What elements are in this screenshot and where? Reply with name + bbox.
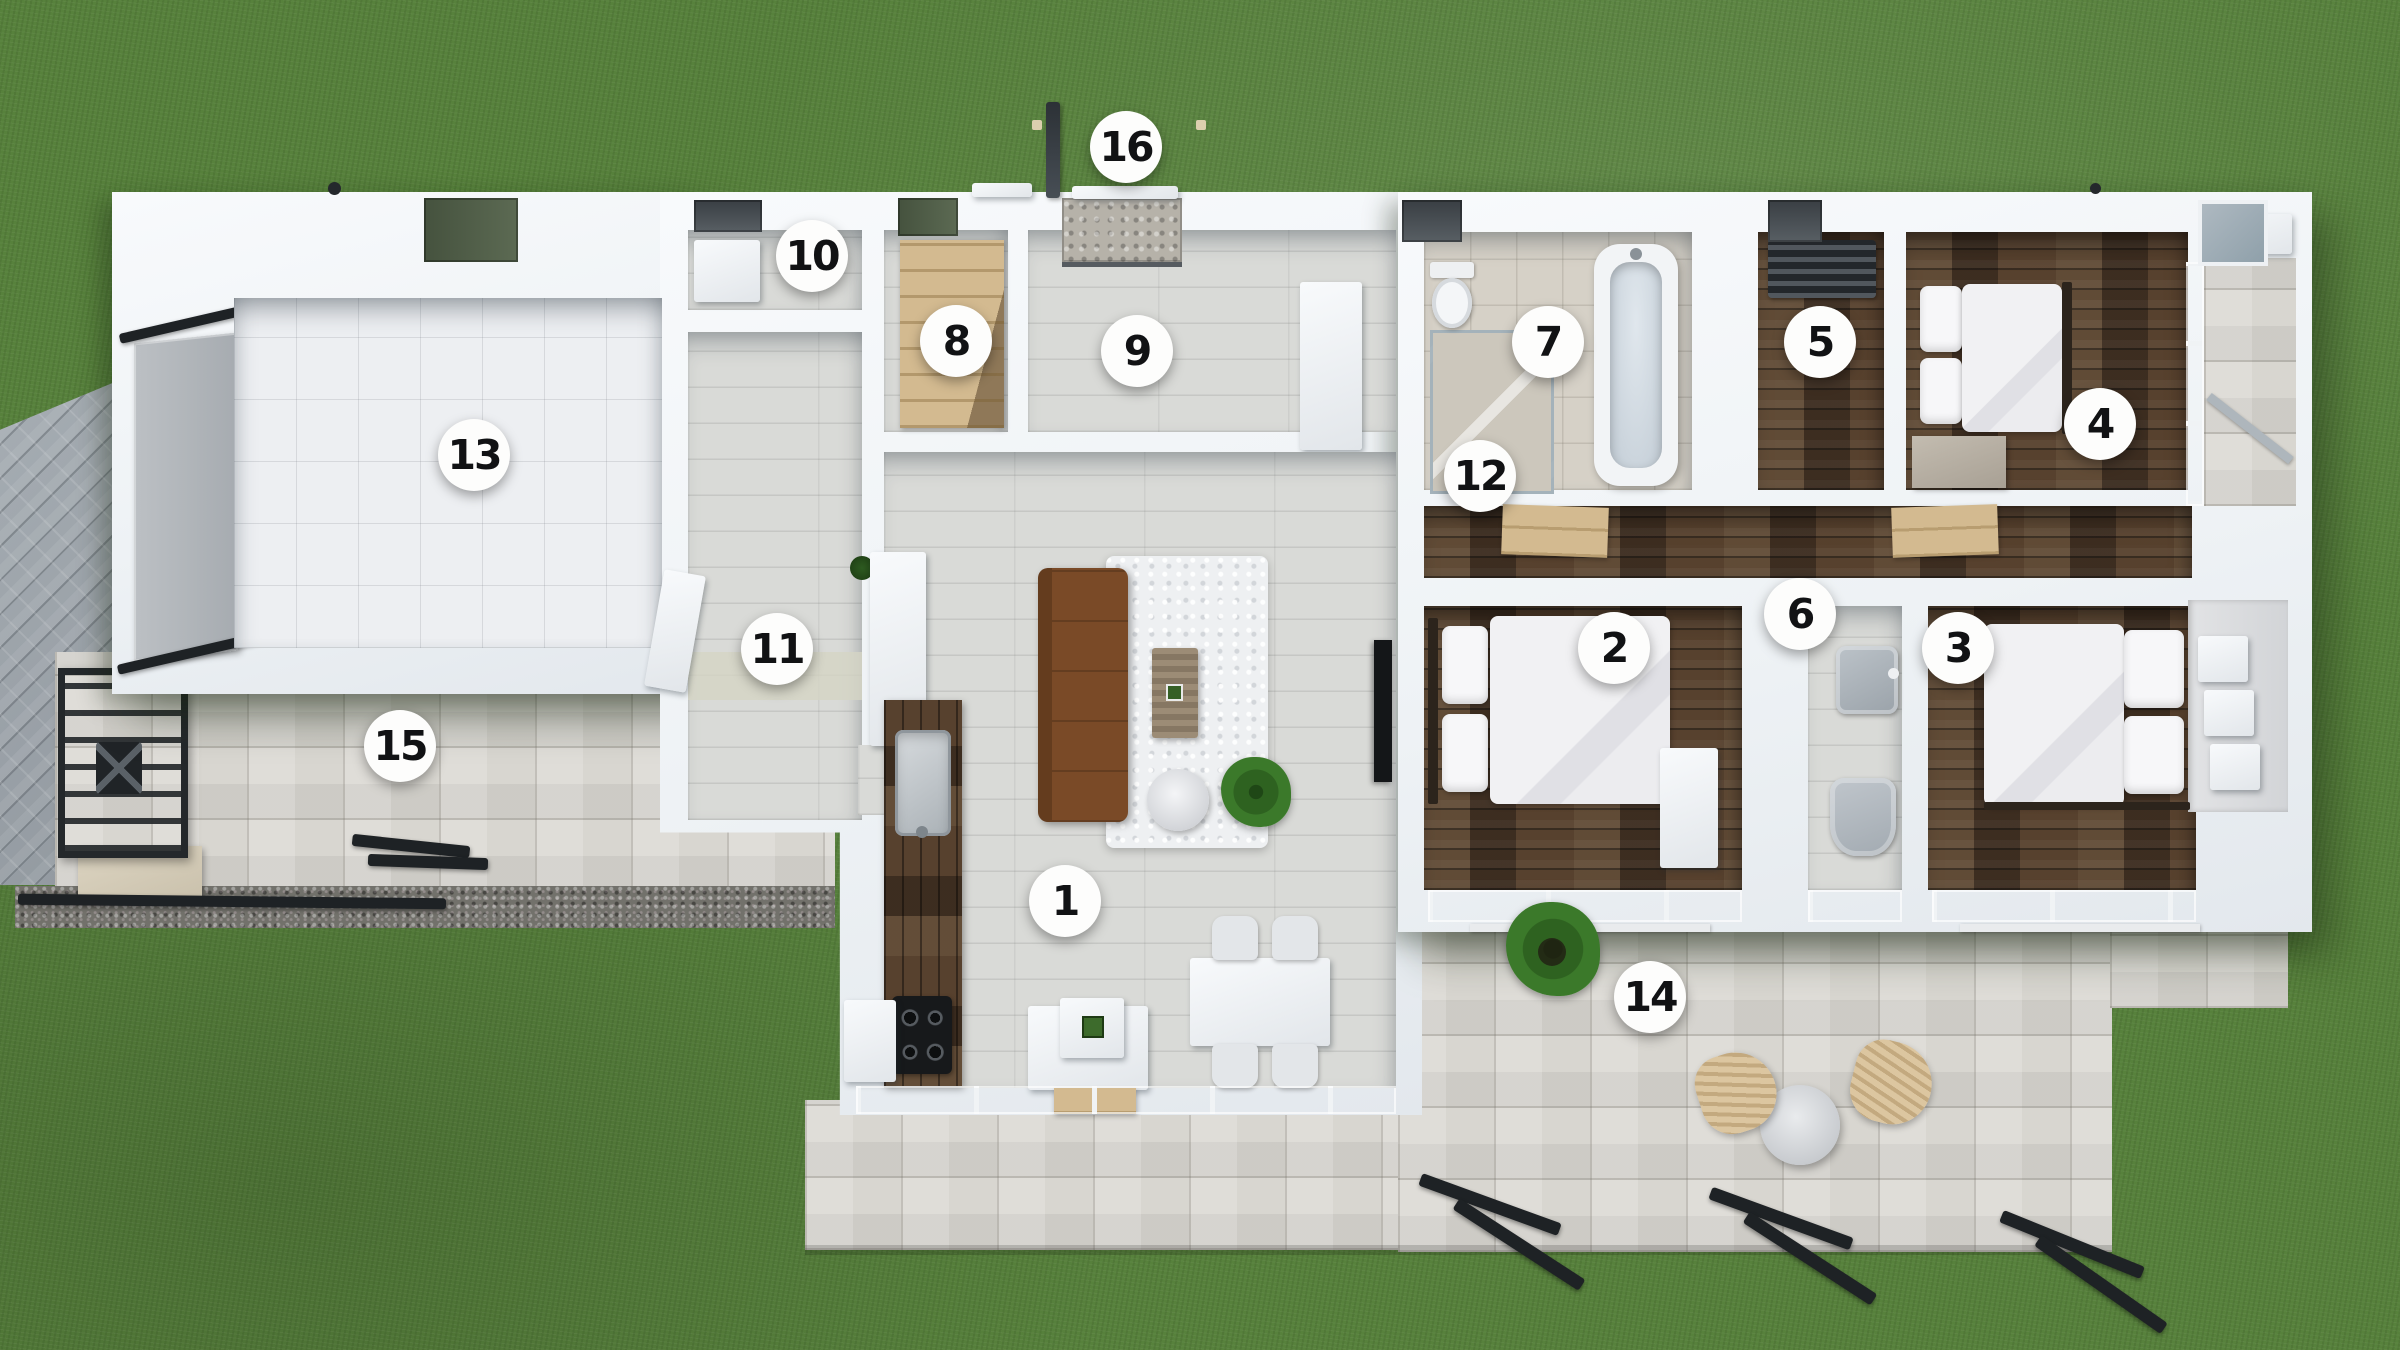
room-marker-1: 1: [1029, 865, 1101, 937]
room-marker-16: 16: [1090, 111, 1162, 183]
room-marker-4: 4: [2064, 388, 2136, 460]
room-marker-14: 14: [1614, 961, 1686, 1033]
room-marker-7: 7: [1512, 306, 1584, 378]
room-marker-13: 13: [438, 419, 510, 491]
room-marker-10: 10: [776, 220, 848, 292]
room-marker-6: 6: [1764, 578, 1836, 650]
room-marker-12: 12: [1444, 440, 1516, 512]
room-marker-9: 9: [1101, 315, 1173, 387]
room-marker-8: 8: [920, 305, 992, 377]
room-marker-11: 11: [741, 613, 813, 685]
room-marker-5: 5: [1784, 306, 1856, 378]
room-marker-3: 3: [1922, 612, 1994, 684]
room-marker-15: 15: [364, 710, 436, 782]
room-markers: 12345678910111213141516: [0, 0, 2400, 1350]
room-marker-2: 2: [1578, 612, 1650, 684]
floor-plan-render: 12345678910111213141516: [0, 0, 2400, 1350]
